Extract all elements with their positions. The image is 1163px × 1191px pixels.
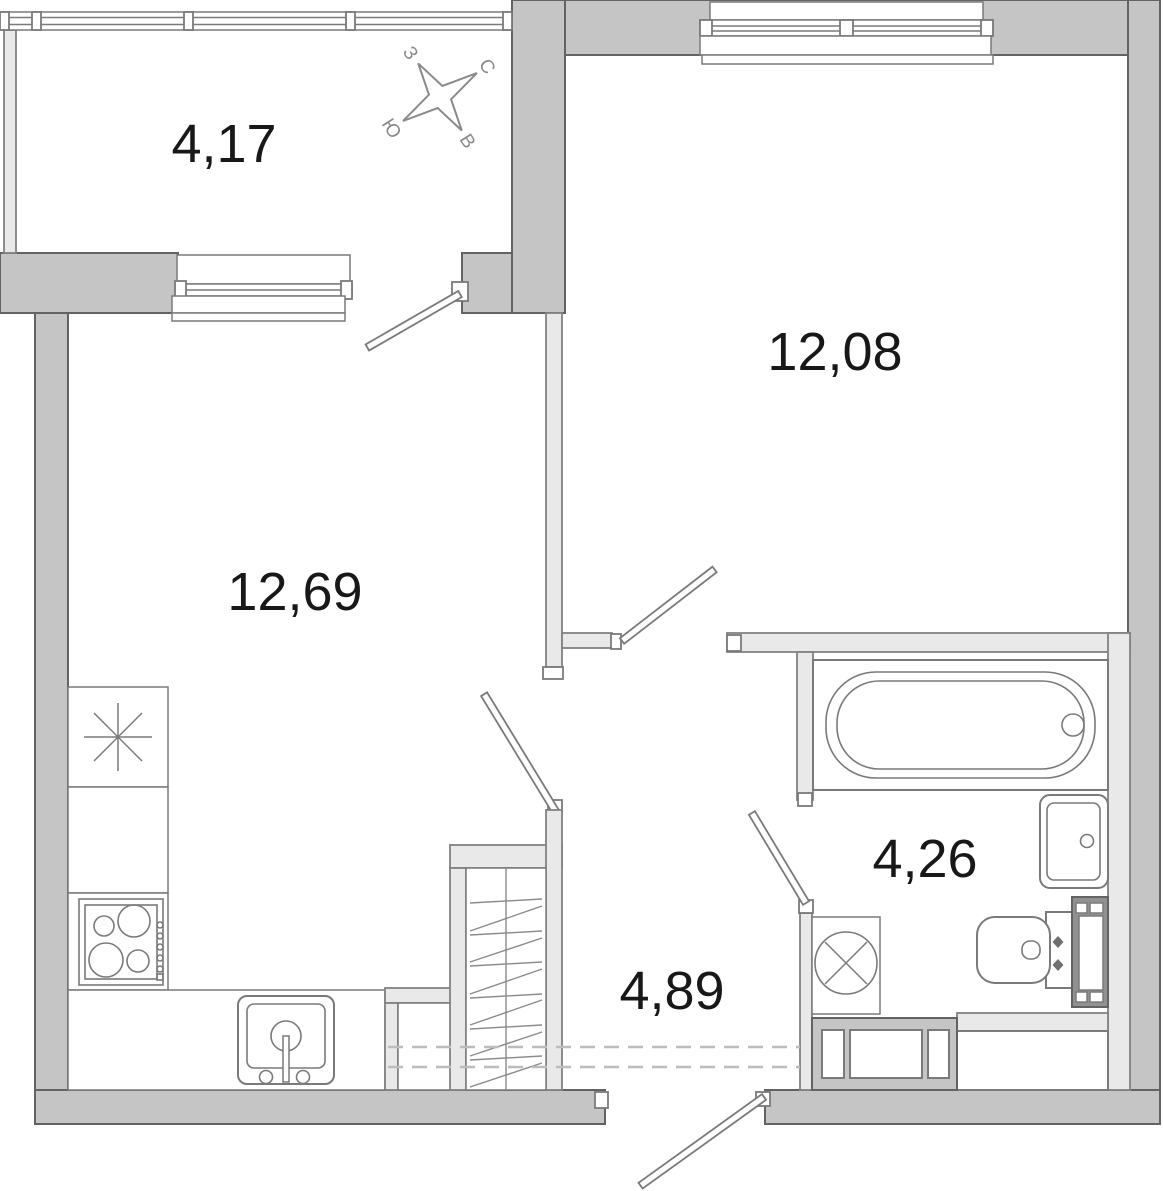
- label-hallway-area: 4,89: [619, 961, 724, 1021]
- fridge: [68, 687, 168, 787]
- wall-balcony-bottom-left: [0, 253, 178, 313]
- heated-towel-rail: [1072, 897, 1108, 1007]
- wall-bottom-right: [765, 1090, 1160, 1124]
- entrance-door: [595, 1092, 770, 1189]
- compass-north: С: [474, 55, 499, 78]
- wall-left: [35, 313, 68, 1124]
- washing-machine: [812, 917, 880, 1014]
- entrance-door-leaf: [639, 1094, 767, 1188]
- stove: [68, 893, 168, 990]
- compass-south: Ю: [377, 115, 405, 143]
- partition-bathroom-left-upper: [797, 652, 813, 800]
- bathtub: [813, 660, 1108, 790]
- bathroom-sink: [1040, 795, 1108, 888]
- compass-east: В: [455, 130, 480, 152]
- partition-bathroom-top: [727, 633, 1130, 652]
- balcony-door-leaf: [366, 291, 462, 351]
- kitchen-window: [172, 255, 352, 321]
- balcony-glazing: [0, 12, 512, 30]
- label-loggia-area: 4,17: [171, 114, 276, 174]
- kitchen-cabinet: [68, 787, 168, 893]
- partition-bathroom-left-lower: [800, 913, 812, 1090]
- kitchen-niche: [385, 988, 452, 1090]
- label-bedroom-area: 12,08: [767, 322, 902, 382]
- wall-right: [1128, 0, 1160, 1124]
- partition-bedroom-stub: [562, 633, 612, 648]
- compass-rose: С В Ю З: [350, 12, 527, 184]
- toilet: [977, 912, 1072, 988]
- wall-balcony-bottom-right: [462, 253, 512, 313]
- bedroom-door: [620, 567, 717, 644]
- hallway-door: [481, 692, 562, 813]
- balcony-side-wall: [4, 30, 16, 253]
- bedroom-door-leaf: [620, 567, 717, 644]
- compass-star: [381, 39, 498, 154]
- partition-kitchen-bedroom: [546, 313, 562, 667]
- kitchen-counter: [68, 990, 385, 1090]
- compass-west: З: [398, 43, 422, 64]
- label-bathroom-area: 4,26: [872, 829, 977, 889]
- hallway-door-leaf: [481, 692, 559, 813]
- bedroom-window: [700, 2, 993, 64]
- label-kitchen-area: 12,69: [227, 562, 362, 622]
- vent-shaft: [812, 1018, 957, 1090]
- bathroom-door: [749, 811, 809, 905]
- balcony-door: [366, 282, 468, 351]
- shaft-open: [957, 1031, 1108, 1090]
- partition-shaft-top: [957, 1013, 1108, 1031]
- partition-bathroom-right: [1108, 633, 1130, 1090]
- wall-bottom-left: [35, 1090, 605, 1124]
- floor-plan: С В Ю З 4,17 12,08 12,69 4,26 4,89: [0, 0, 1163, 1191]
- bathroom-door-leaf: [749, 811, 809, 905]
- wall-balcony-bedroom: [512, 0, 565, 313]
- kitchen-sink: [238, 996, 334, 1084]
